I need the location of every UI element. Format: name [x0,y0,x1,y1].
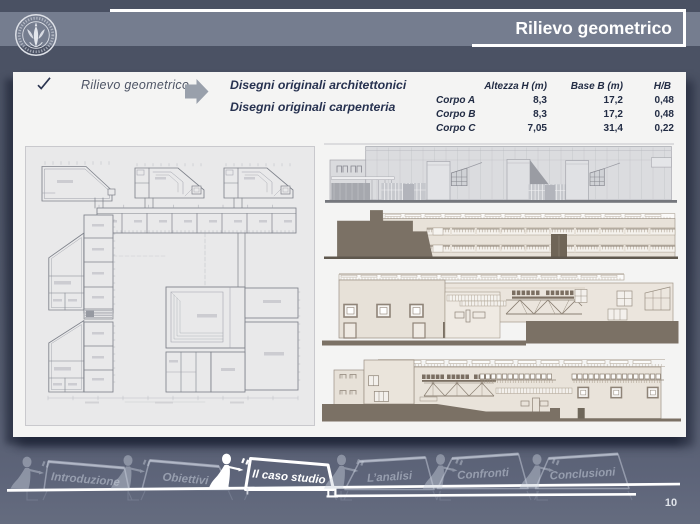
svg-text:Introduzione: Introduzione [51,471,121,489]
svg-text:Confronti: Confronti [457,467,510,482]
svg-text:Conclusioni: Conclusioni [549,466,616,482]
svg-text:Obiettivi: Obiettivi [162,472,210,488]
svg-text:Il caso studio: Il caso studio [252,468,326,486]
svg-text:L’analisi: L’analisi [367,470,414,485]
